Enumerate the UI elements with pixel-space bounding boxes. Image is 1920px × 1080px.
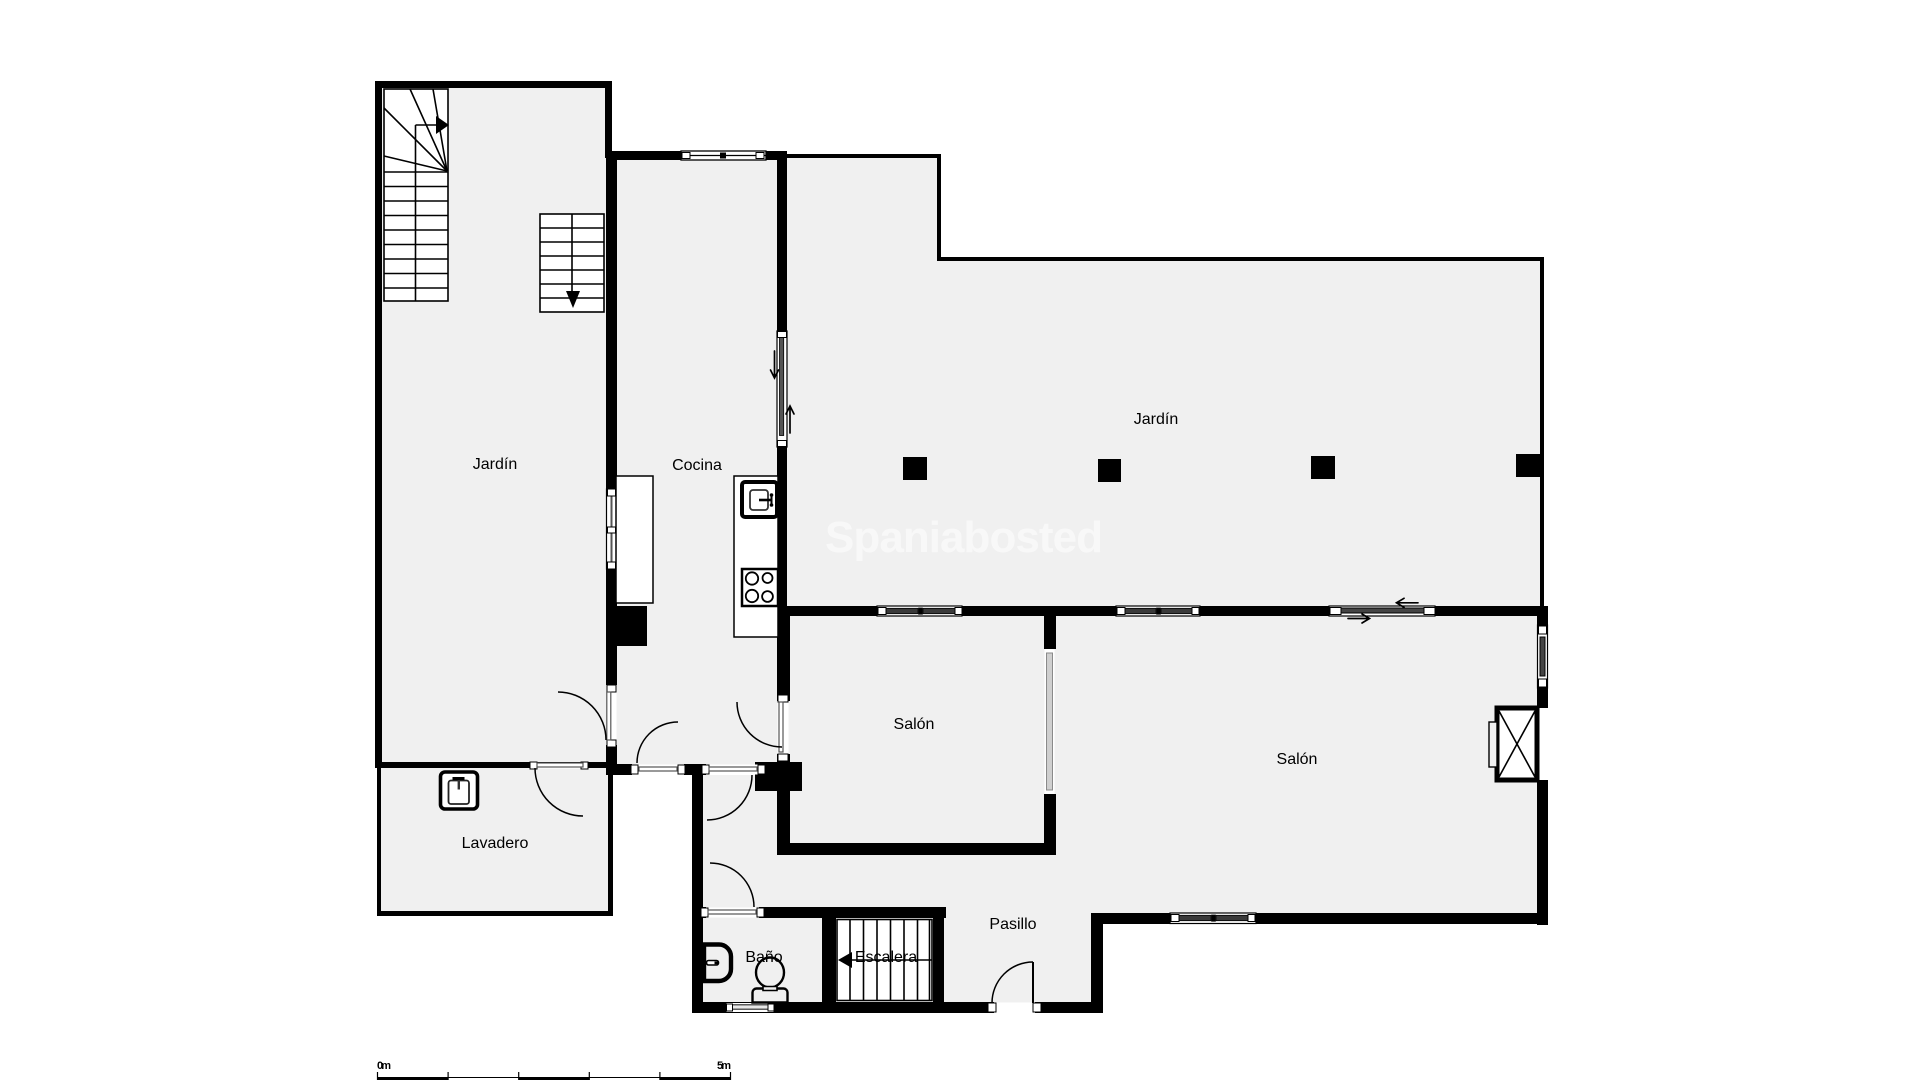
- svg-text:Jardín: Jardín: [473, 456, 517, 473]
- svg-text:Escalera: Escalera: [855, 949, 917, 966]
- svg-text:Spaniabosted: Spaniabosted: [825, 513, 1103, 562]
- svg-text:Salón: Salón: [1277, 751, 1318, 768]
- svg-text:Baño: Baño: [745, 949, 782, 966]
- svg-text:Salón: Salón: [894, 716, 935, 733]
- svg-text:0m: 0m: [377, 1060, 391, 1072]
- svg-text:Lavadero: Lavadero: [462, 835, 529, 852]
- svg-text:Jardín: Jardín: [1134, 411, 1178, 428]
- svg-text:5m: 5m: [717, 1060, 731, 1072]
- svg-text:Cocina: Cocina: [672, 457, 722, 474]
- svg-text:Pasillo: Pasillo: [989, 916, 1036, 933]
